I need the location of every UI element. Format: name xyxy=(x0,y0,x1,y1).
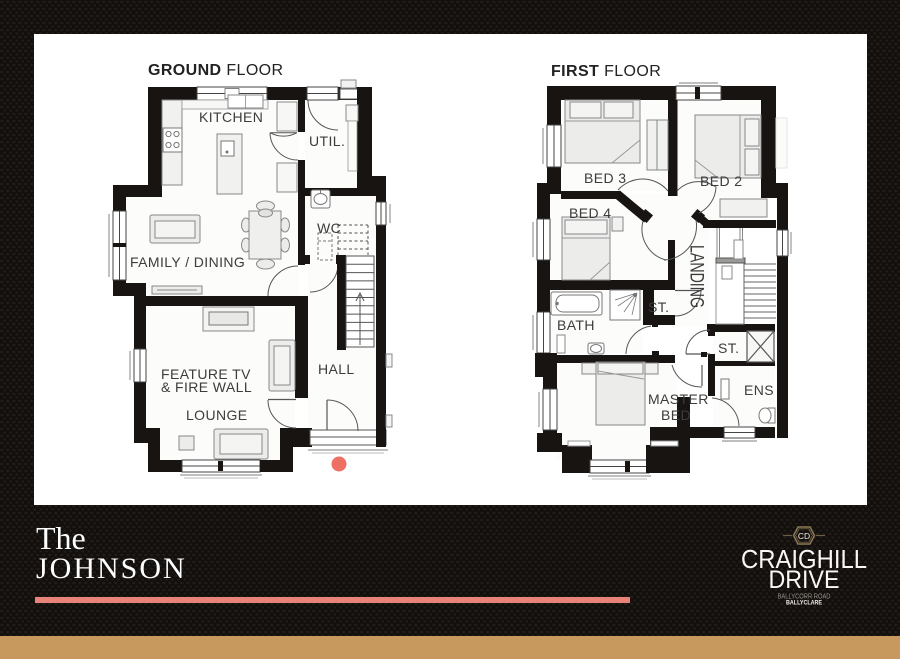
svg-text:UTIL.: UTIL. xyxy=(309,133,345,149)
svg-text:DRIVE: DRIVE xyxy=(769,566,840,594)
svg-text:KITCHEN: KITCHEN xyxy=(199,109,263,125)
svg-text:BALLYCLARE: BALLYCLARE xyxy=(786,600,822,607)
svg-text:ST.: ST. xyxy=(718,340,739,356)
svg-text:GROUND FLOOR: GROUND FLOOR xyxy=(148,62,283,79)
svg-text:WC: WC xyxy=(317,220,341,236)
svg-text:& FIRE WALL: & FIRE WALL xyxy=(161,379,252,395)
svg-text:BED: BED xyxy=(661,407,691,423)
svg-text:FAMILY / DINING: FAMILY / DINING xyxy=(130,254,245,270)
svg-text:CD: CD xyxy=(798,531,810,541)
svg-text:LOUNGE: LOUNGE xyxy=(186,407,248,423)
svg-text:FIRST FLOOR: FIRST FLOOR xyxy=(551,63,661,80)
svg-text:BED 2: BED 2 xyxy=(700,173,742,189)
svg-text:HALL: HALL xyxy=(318,361,355,377)
svg-text:ST.: ST. xyxy=(648,299,669,315)
svg-text:MASTER: MASTER xyxy=(648,391,709,407)
svg-text:BATH: BATH xyxy=(557,317,595,333)
svg-text:ENS: ENS xyxy=(744,382,774,398)
svg-text:BED 4: BED 4 xyxy=(569,205,611,221)
svg-text:LANDING: LANDING xyxy=(686,245,708,308)
svg-text:BED 3: BED 3 xyxy=(584,170,626,186)
